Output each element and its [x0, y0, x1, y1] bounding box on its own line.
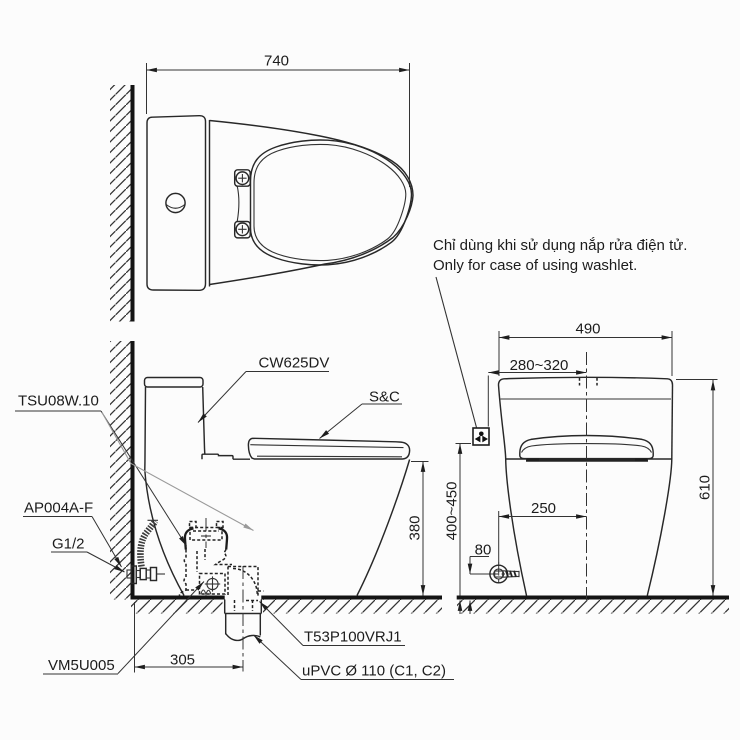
svg-text:S&C: S&C — [369, 389, 400, 406]
svg-text:80: 80 — [475, 542, 492, 559]
svg-text:400~450: 400~450 — [444, 482, 461, 541]
svg-text:VM5U005: VM5U005 — [48, 657, 115, 674]
svg-text:250: 250 — [531, 500, 556, 517]
svg-text:Chỉ dùng khi sử dụng nắp rửa đ: Chỉ dùng khi sử dụng nắp rửa điện tử. — [433, 237, 687, 254]
svg-text:380: 380 — [407, 515, 424, 540]
svg-text:uPVC Ø 110 (C1, C2): uPVC Ø 110 (C1, C2) — [302, 663, 446, 680]
svg-text:280~320: 280~320 — [510, 357, 569, 374]
svg-text:610: 610 — [697, 475, 714, 500]
svg-text:G1/2: G1/2 — [52, 536, 85, 553]
svg-text:490: 490 — [575, 321, 600, 338]
svg-text:AP004A-F: AP004A-F — [24, 500, 93, 517]
svg-text:305: 305 — [170, 652, 195, 669]
svg-text:TSU08W.10: TSU08W.10 — [18, 393, 99, 410]
svg-text:CW625DV: CW625DV — [259, 355, 330, 372]
svg-text:Only for case of using washlet: Only for case of using washlet. — [433, 257, 637, 274]
svg-text:740: 740 — [264, 53, 289, 70]
svg-text:T53P100VRJ1: T53P100VRJ1 — [304, 629, 402, 646]
